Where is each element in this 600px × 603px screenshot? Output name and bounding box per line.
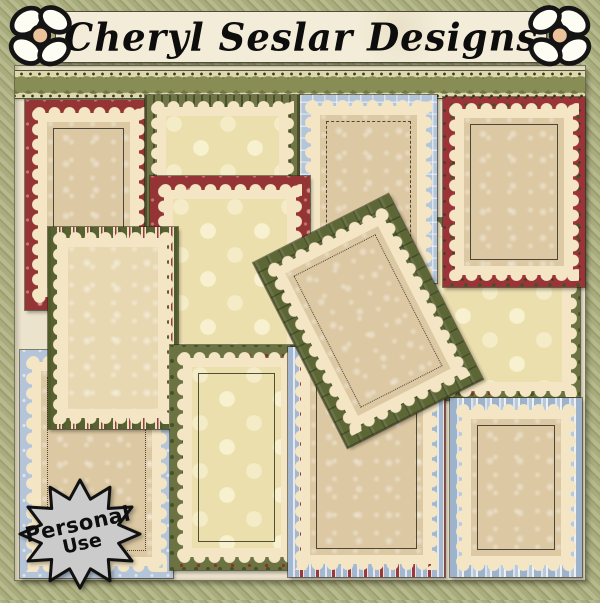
scallop-mat	[183, 358, 290, 557]
frame-blue-stripe	[450, 398, 582, 577]
personal-use-badge: Personal Use	[17, 477, 143, 591]
daisy-flower-icon	[518, 2, 600, 72]
keyline	[470, 124, 558, 260]
keyline	[477, 425, 555, 550]
brand-title: Cheryl Seslar Designs	[64, 14, 538, 60]
daisy-flower-icon	[0, 2, 82, 72]
frame-red-holly	[443, 97, 585, 287]
frame-green-holly	[170, 345, 303, 570]
frame-inner	[68, 247, 158, 409]
keyline	[198, 373, 275, 542]
scallop-mat	[59, 238, 167, 418]
frame-inner	[471, 419, 561, 556]
scallop-mat	[462, 410, 570, 565]
header-banner: Cheryl Seslar Designs	[55, 11, 547, 63]
badge-line-use: Use	[61, 531, 104, 559]
frame-inner	[464, 118, 564, 266]
frame-green-candy-stripe	[48, 227, 178, 429]
keyline	[293, 234, 442, 408]
scallop-mat	[455, 109, 573, 275]
frame-inner	[192, 367, 281, 548]
